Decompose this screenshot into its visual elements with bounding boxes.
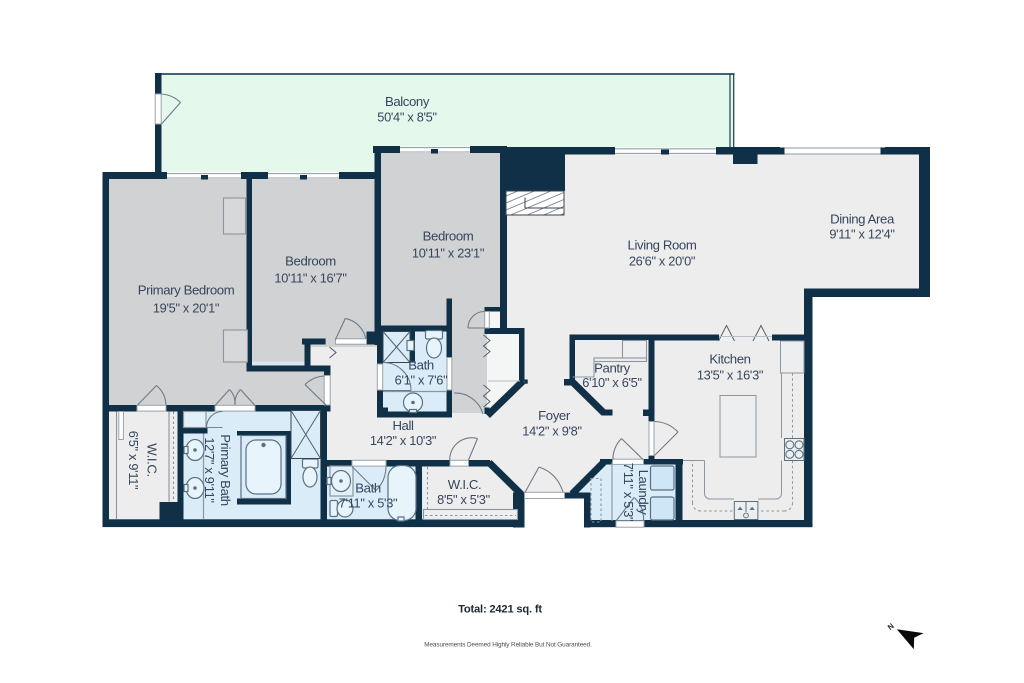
- svg-text:19'5" x 20'1": 19'5" x 20'1": [153, 301, 219, 316]
- svg-text:50'4" x 8'5": 50'4" x 8'5": [377, 110, 436, 125]
- svg-text:10'11" x 23'1": 10'11" x 23'1": [412, 246, 484, 261]
- svg-text:10'11" x 16'7": 10'11" x 16'7": [274, 271, 346, 286]
- svg-text:W.I.C.: W.I.C.: [145, 443, 160, 477]
- svg-text:Primary Bedroom: Primary Bedroom: [138, 283, 235, 298]
- svg-text:Living Room: Living Room: [628, 238, 697, 253]
- svg-text:Primary Bath: Primary Bath: [218, 434, 233, 505]
- svg-text:Hall: Hall: [392, 418, 414, 433]
- svg-text:Total: 2421 sq. ft: Total: 2421 sq. ft: [458, 604, 542, 616]
- svg-text:9'11" x 12'4": 9'11" x 12'4": [829, 227, 894, 242]
- svg-text:Balcony: Balcony: [385, 94, 430, 109]
- svg-text:Laundry: Laundry: [636, 470, 651, 516]
- svg-text:14'2" x 9'8": 14'2" x 9'8": [522, 424, 581, 439]
- svg-text:26'6" x 20'0": 26'6" x 20'0": [629, 254, 695, 269]
- svg-text:6'10" x 6'5": 6'10" x 6'5": [582, 375, 641, 390]
- svg-text:Bedroom: Bedroom: [423, 229, 474, 244]
- svg-text:Kitchen: Kitchen: [709, 352, 750, 367]
- svg-text:Bath: Bath: [355, 481, 381, 496]
- svg-text:W.I.C.: W.I.C.: [448, 477, 482, 492]
- svg-text:14'2" x 10'3": 14'2" x 10'3": [370, 433, 436, 448]
- svg-text:6'5" x 9'11": 6'5" x 9'11": [126, 431, 141, 490]
- svg-text:Bath: Bath: [408, 358, 434, 373]
- svg-text:Bedroom: Bedroom: [285, 254, 336, 269]
- svg-text:7'11" x 5'3": 7'11" x 5'3": [621, 463, 636, 522]
- svg-text:7'11" x 5'3": 7'11" x 5'3": [339, 496, 398, 511]
- svg-text:N: N: [886, 621, 896, 631]
- svg-text:Dining Area: Dining Area: [830, 212, 895, 227]
- svg-text:8'5" x 5'3": 8'5" x 5'3": [437, 492, 490, 507]
- svg-text:Measurements Deemed Highly Rel: Measurements Deemed Highly Reliable But …: [424, 642, 592, 649]
- svg-text:6'1" x 7'6": 6'1" x 7'6": [395, 373, 448, 388]
- svg-text:12'7" x 9'11": 12'7" x 9'11": [202, 437, 217, 502]
- svg-text:Foyer: Foyer: [538, 408, 571, 423]
- svg-text:13'5" x 16'3": 13'5" x 16'3": [697, 368, 763, 383]
- svg-text:Pantry: Pantry: [594, 361, 631, 376]
